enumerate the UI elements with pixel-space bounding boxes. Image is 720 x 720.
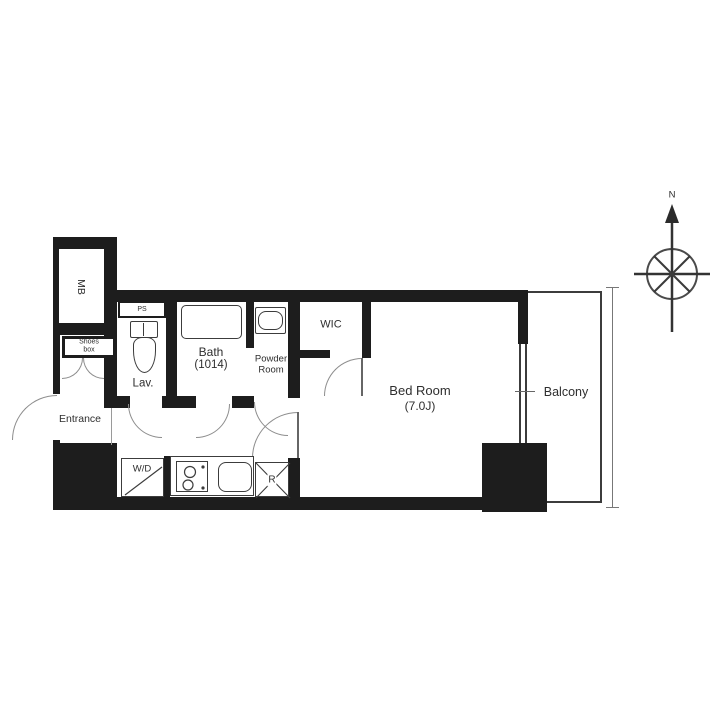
wall-block-bottom-right (482, 443, 547, 512)
shoes-box-door-arc-right (83, 358, 104, 379)
wall-bath-powder (246, 302, 254, 348)
fixture-label-refrigerator: R (267, 474, 276, 486)
wall-corridor-a (104, 396, 130, 408)
wall-left-upper (53, 335, 60, 394)
dimension-line (612, 288, 613, 508)
basin-bowl-icon (258, 311, 283, 330)
room-label-bedroom: Bed Room (7.0J) (389, 383, 450, 413)
toilet-bowl-icon (133, 337, 156, 373)
compass-north-label: N (669, 191, 676, 202)
room-label-powder: Powder Room (255, 354, 287, 377)
balcony-leader-line (515, 391, 535, 392)
wall-lav-bath (166, 302, 177, 396)
room-label-ps: PS (137, 306, 146, 314)
shoes-box-door-arc-left (62, 358, 83, 379)
window-line-outer (519, 344, 521, 443)
balcony-edge-top (528, 291, 602, 293)
wall-corridor-b (162, 396, 196, 408)
wall-wic-bottom (288, 350, 330, 358)
room-label-lav: Lav. (133, 377, 154, 390)
room-label-balcony: Balcony (544, 385, 588, 399)
toilet-tank-line (143, 323, 144, 336)
wall-mb-right-column (104, 237, 117, 400)
compass-icon (620, 180, 720, 340)
balcony-edge-right (600, 291, 602, 503)
wic-door-arc (324, 358, 362, 396)
room-label-bath: Bath (1014) (194, 345, 227, 373)
wall-mb-bottom (53, 323, 117, 335)
wall-bedroom-right-top (518, 293, 528, 344)
room-label-wic: WIC (320, 319, 341, 332)
room-label-entrance: Entrance (59, 413, 101, 425)
room-label-mb: MB (75, 279, 87, 295)
fixture-label-washer: W/D (133, 465, 151, 476)
bedroom-door-leaf (297, 412, 299, 458)
balcony-edge-bottom (547, 501, 602, 503)
lav-door-arc (128, 404, 162, 438)
sink-icon (218, 462, 252, 492)
stove-burners-icon (177, 462, 209, 493)
wall-top (117, 290, 528, 302)
wall-bedroom-left-upper (288, 290, 300, 398)
window-line-inner (525, 344, 527, 443)
bathtub-icon (181, 305, 242, 339)
wic-door-leaf (361, 358, 363, 396)
wall-bottom (53, 497, 543, 510)
wall-corridor-c (232, 396, 254, 408)
entrance-step-line (111, 408, 112, 445)
wall-wic-right (362, 290, 371, 358)
toilet-tank-icon (130, 321, 158, 338)
shoes-box-label: Shoes box (79, 339, 99, 356)
floor-plan: MB PS Shoes box Lav. Bath (1014) Powder … (0, 0, 720, 720)
bath-door-arc (196, 404, 230, 438)
stove-icon (176, 461, 208, 492)
dimension-tick-bottom (606, 507, 619, 508)
entry-door-arc (12, 395, 57, 440)
dimension-tick-top (606, 287, 619, 288)
compass-north-arrow (665, 204, 679, 223)
